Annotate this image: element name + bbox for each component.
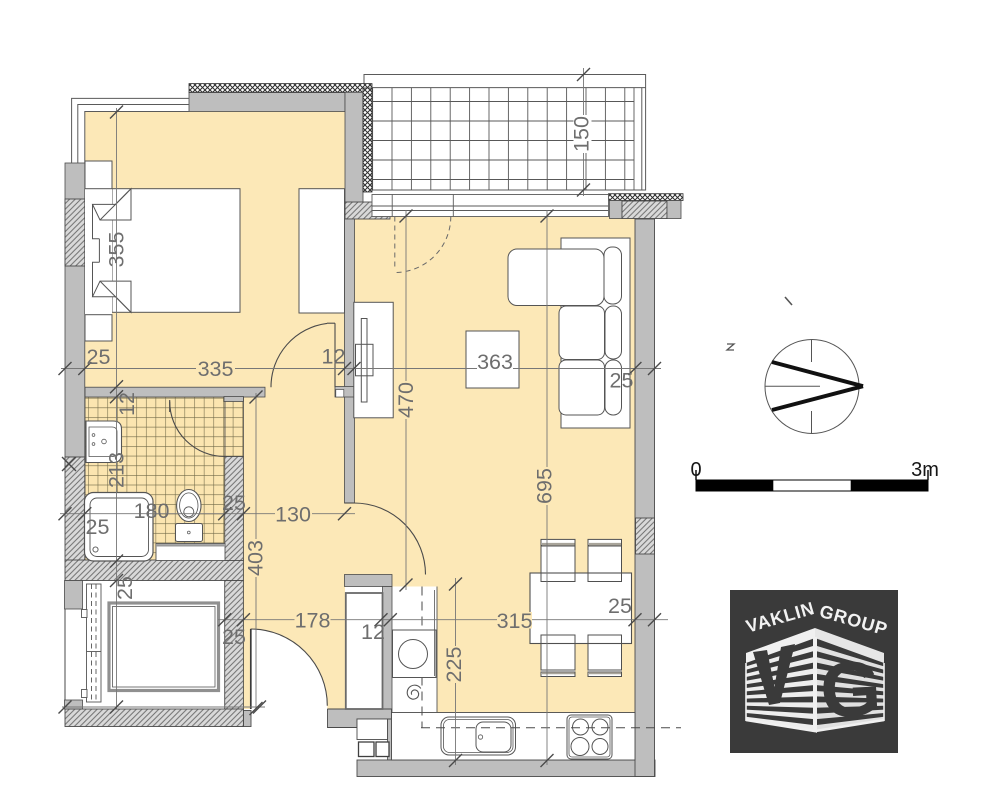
svg-text:25: 25 [87,345,111,369]
svg-text:130: 130 [275,503,311,527]
svg-text:25: 25 [222,491,246,515]
svg-text:335: 335 [198,357,234,381]
svg-text:470: 470 [394,382,418,418]
svg-text:25: 25 [113,576,137,600]
svg-text:0: 0 [690,459,701,481]
svg-text:25: 25 [86,515,110,539]
svg-text:355: 355 [105,232,129,268]
svg-text:180: 180 [134,499,170,523]
svg-text:150: 150 [570,116,594,152]
svg-text:25: 25 [222,625,246,649]
svg-text:12: 12 [115,392,139,416]
svg-text:178: 178 [295,609,331,633]
svg-text:315: 315 [497,609,533,633]
svg-text:403: 403 [244,540,268,576]
svg-text:25: 25 [608,594,632,618]
svg-text:12: 12 [361,620,385,644]
svg-text:25: 25 [610,369,634,393]
svg-text:213: 213 [105,452,129,488]
svg-text:3m: 3m [911,459,939,481]
svg-text:225: 225 [442,647,466,683]
svg-text:695: 695 [533,468,557,504]
svg-text:363: 363 [477,350,513,374]
svg-text:12: 12 [322,345,346,369]
